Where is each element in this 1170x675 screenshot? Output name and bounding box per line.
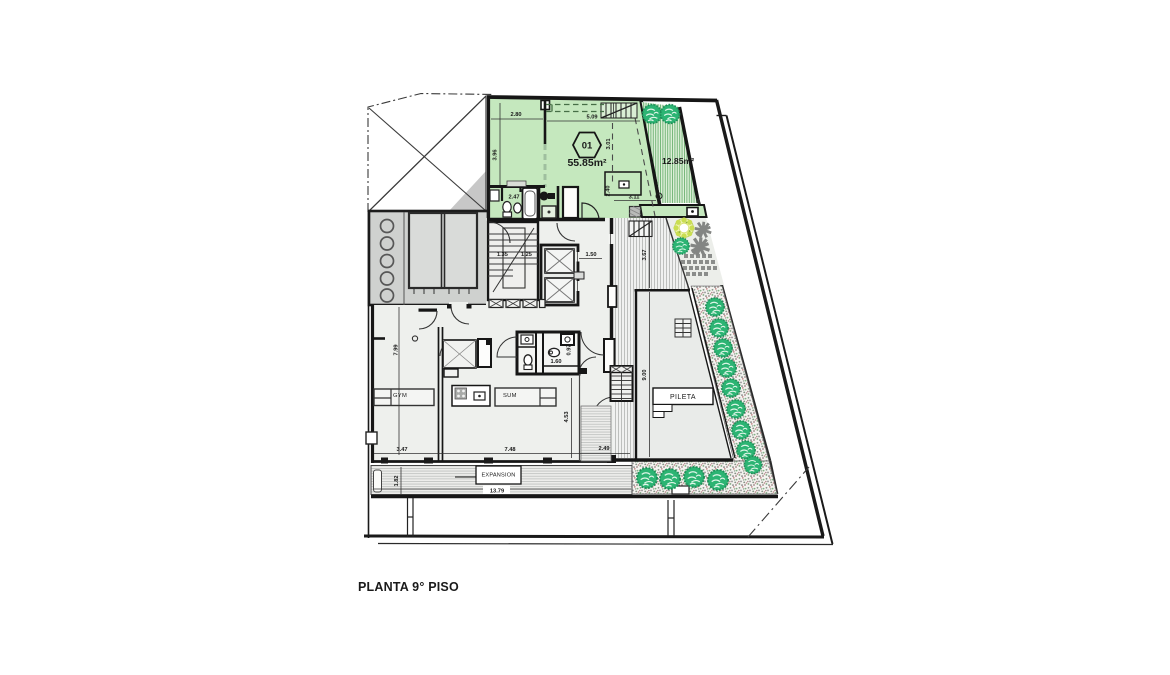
svg-text:2.47: 2.47 <box>508 195 519 201</box>
svg-text:0.97: 0.97 <box>567 344 573 355</box>
svg-text:PLANTA 9° PISO: PLANTA 9° PISO <box>358 580 459 594</box>
svg-text:13.79: 13.79 <box>490 489 504 495</box>
svg-text:SUM: SUM <box>503 393 517 399</box>
svg-text:1.50: 1.50 <box>585 252 596 258</box>
svg-text:7.48: 7.48 <box>504 447 515 453</box>
svg-text:5.09: 5.09 <box>586 115 597 121</box>
svg-text:3.67: 3.67 <box>642 249 648 260</box>
svg-text:3.96: 3.96 <box>493 149 499 160</box>
svg-text:3.01: 3.01 <box>606 138 612 149</box>
svg-text:1.25: 1.25 <box>521 252 532 258</box>
svg-text:PILETA: PILETA <box>670 394 696 401</box>
svg-text:12.85m²: 12.85m² <box>662 156 694 166</box>
svg-text:2.40: 2.40 <box>606 185 612 196</box>
svg-text:55.85m²: 55.85m² <box>567 157 607 169</box>
svg-text:3.47: 3.47 <box>396 447 407 453</box>
svg-text:1.35: 1.35 <box>497 252 508 258</box>
svg-text:3.11: 3.11 <box>629 195 640 201</box>
svg-text:7.99: 7.99 <box>394 344 400 355</box>
svg-text:9.00: 9.00 <box>642 369 648 380</box>
svg-text:1.60: 1.60 <box>550 359 561 365</box>
svg-text:EXPANSION: EXPANSION <box>481 473 515 479</box>
svg-text:GYM: GYM <box>393 393 407 399</box>
svg-text:2.80: 2.80 <box>510 112 521 118</box>
svg-text:01: 01 <box>582 141 593 152</box>
svg-text:2.49: 2.49 <box>598 446 609 452</box>
svg-text:4.53: 4.53 <box>564 411 570 422</box>
svg-text:1.36: 1.36 <box>542 195 553 201</box>
svg-text:1.82: 1.82 <box>394 475 400 486</box>
